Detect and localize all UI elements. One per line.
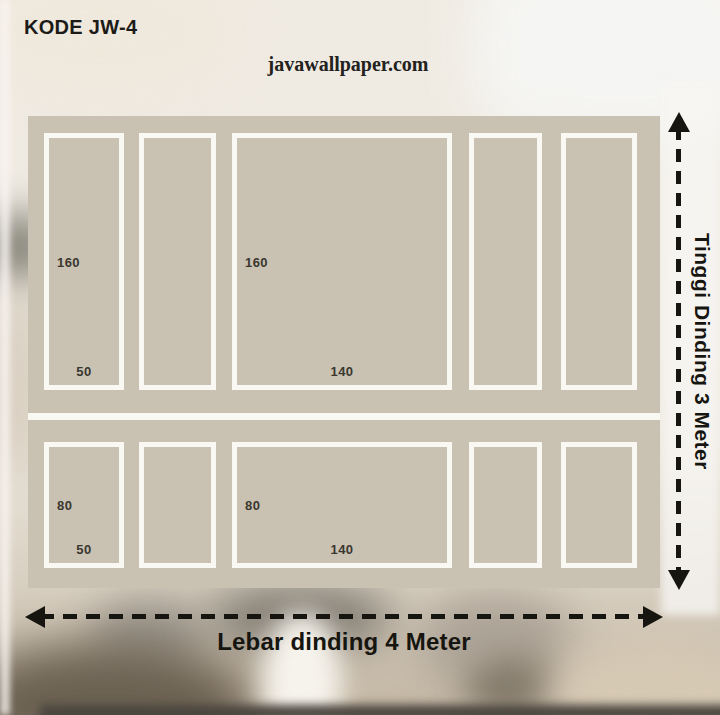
background-photo-blur — [0, 0, 230, 90]
panel-width-label: 140 — [331, 542, 354, 557]
panel-upper-4 — [469, 133, 542, 390]
background-photo-blur — [40, 705, 720, 715]
panel-upper-5 — [561, 133, 637, 390]
vertical-double-arrow-icon — [668, 112, 690, 590]
wall-diagram: 160 50 160 140 80 50 80 140 — [28, 116, 660, 588]
brand-name: javawallpaper.com — [0, 53, 696, 76]
panel-height-label: 160 — [57, 254, 80, 269]
wall-height-label: Tinggi Dinding 3 Meter — [690, 233, 714, 470]
infographic-canvas: KODE JW-4 javawallpaper.com 160 50 160 1… — [0, 0, 720, 715]
panel-lower-1: 80 50 — [44, 442, 124, 568]
panel-upper-1: 160 50 — [44, 133, 124, 390]
dashed-line — [40, 614, 648, 619]
panel-lower-2 — [139, 442, 216, 568]
panel-width-label: 140 — [331, 364, 354, 379]
panel-height-label: 160 — [245, 254, 268, 269]
panel-width-label: 50 — [76, 542, 91, 557]
arrow-down-icon — [668, 570, 690, 590]
panel-width-label: 50 — [76, 364, 91, 379]
panel-lower-3: 80 140 — [232, 442, 452, 568]
panel-upper-3: 160 140 — [232, 133, 452, 390]
dashed-line — [676, 127, 681, 575]
horizontal-double-arrow-icon — [25, 606, 663, 628]
panel-lower-5 — [561, 442, 637, 568]
wall-height-dimension: Tinggi Dinding 3 Meter — [690, 112, 714, 590]
background-photo-blur — [0, 0, 10, 715]
product-code-label: KODE JW-4 — [24, 16, 137, 39]
arrow-right-icon — [643, 606, 663, 628]
wall-width-label: Lebar dinding 4 Meter — [25, 628, 663, 656]
panel-height-label: 80 — [245, 498, 260, 513]
panel-upper-2 — [139, 133, 216, 390]
chair-rail-divider — [28, 413, 660, 420]
panel-height-label: 80 — [57, 498, 72, 513]
panel-lower-4 — [469, 442, 542, 568]
